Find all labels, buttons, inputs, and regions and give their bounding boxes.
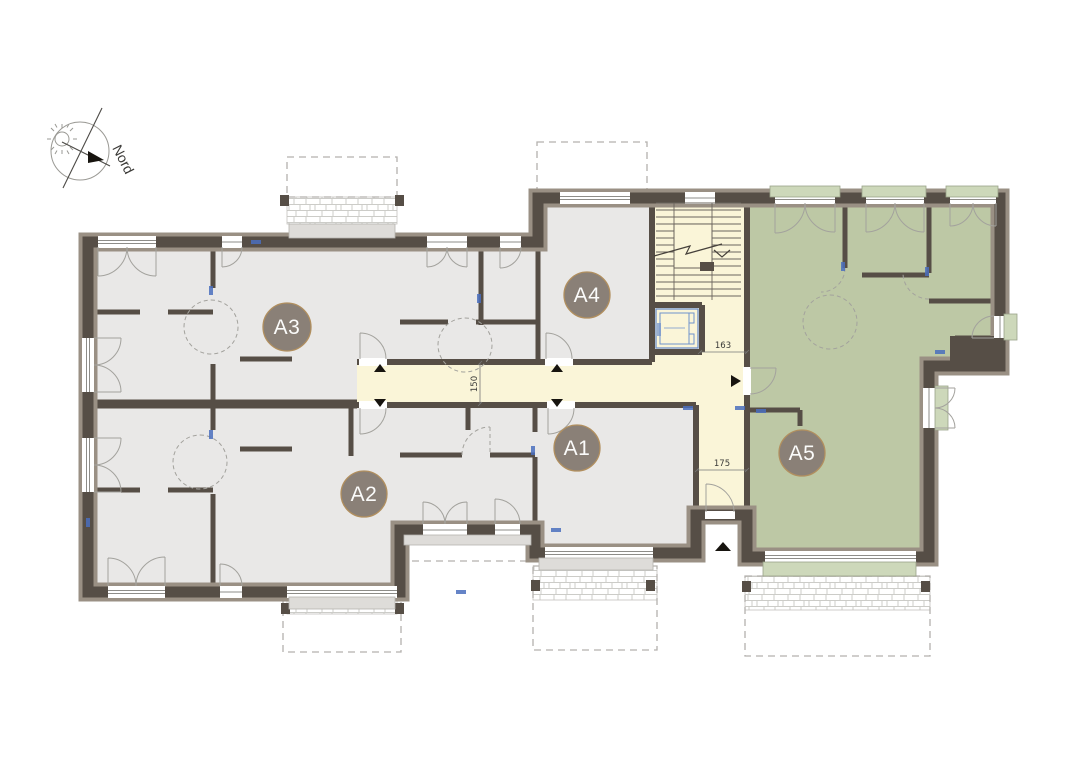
floor-plan-svg: 163 150 175 A3 [0,0,1076,780]
floor-plan-page: 163 150 175 A3 [0,0,1076,780]
apartment-label-a5: A5 [779,430,825,476]
north-needle-icon [62,142,110,166]
svg-text:175: 175 [714,459,730,469]
apartment-a5-floor [747,198,1000,557]
svg-text:A3: A3 [274,316,301,339]
terrace-bottom-a5 [742,576,930,656]
compass: Nord [47,108,137,188]
apartment-label-a4: A4 [564,272,610,318]
svg-text:A1: A1 [564,437,591,460]
svg-text:163: 163 [715,341,731,351]
svg-text:A2: A2 [351,483,378,506]
wall-mass-a5-step [950,336,1002,368]
apartment-label-a2: A2 [341,471,387,517]
svg-text:150: 150 [470,376,480,392]
main-entrance-arrow [715,542,731,551]
apartment-label-a1: A1 [554,425,600,471]
compass-diagonal-line [63,108,102,188]
terrace-top-left [280,157,404,224]
compass-label: Nord [109,142,137,176]
apartment-label-a3: A3 [263,303,311,351]
corridor-floor [357,362,747,405]
svg-text:A4: A4 [574,284,601,307]
terrace-top-middle [537,142,647,196]
terrace-bottom-a1 [531,566,657,650]
apartment-a4-floor [400,198,652,362]
svg-text:A5: A5 [789,442,816,465]
